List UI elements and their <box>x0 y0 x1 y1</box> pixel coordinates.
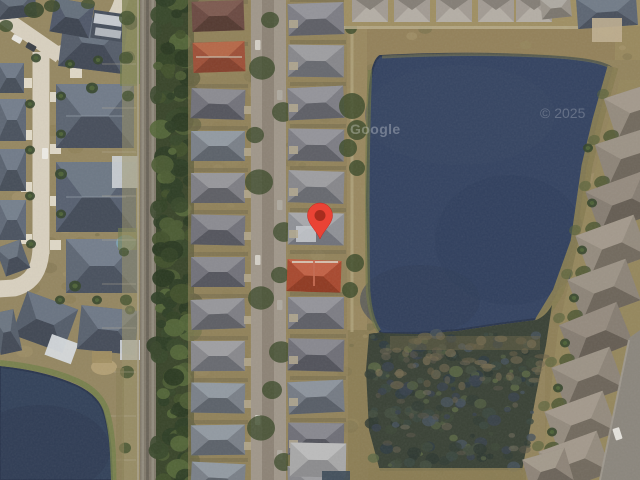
svg-text:© 2025: © 2025 <box>540 105 586 121</box>
svg-text:Google: Google <box>350 121 401 137</box>
